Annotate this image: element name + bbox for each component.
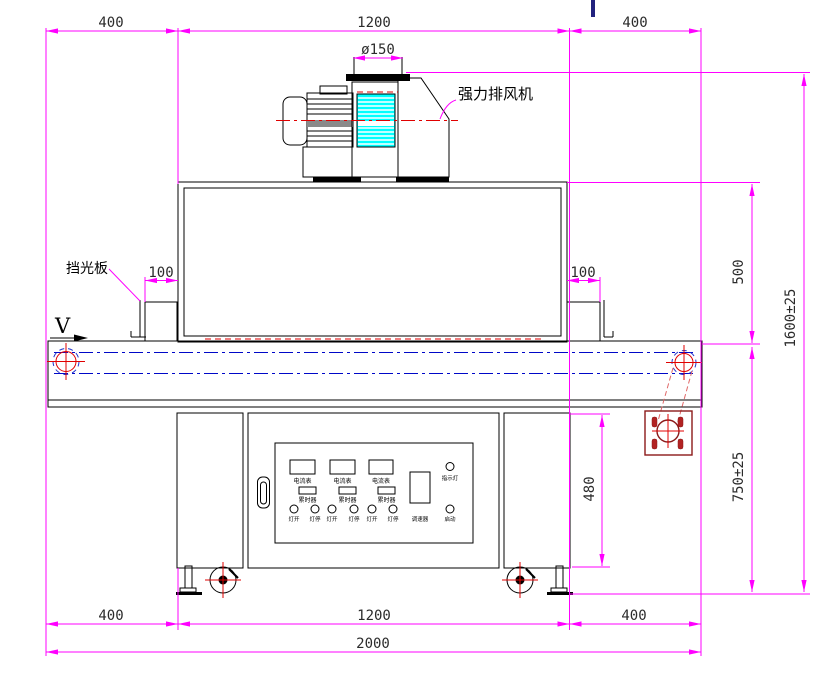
ammeter-label: 电流表 <box>293 477 311 485</box>
callouts: 挡光板 强力排风机 V <box>50 86 533 342</box>
lamp-button-label: 灯开 <box>288 515 300 523</box>
duct-stub <box>354 57 402 74</box>
shield-plate-left <box>131 300 146 337</box>
dim-label-1600: 1600±25 <box>783 288 799 347</box>
hour-counter-display <box>378 487 395 494</box>
control-panel: 电流表 电流表 电流表 累时器 累时器 累时器 灯开 灯停 灯开 灯停 灯开 灯… <box>258 443 474 543</box>
oven-body <box>178 182 567 342</box>
ammeter-label: 电流表 <box>333 477 351 485</box>
dim-label-100-right: 100 <box>570 265 595 281</box>
belt-centerlines <box>54 353 696 374</box>
bracket-slot <box>652 439 657 449</box>
dim-label-480: 480 <box>582 476 598 501</box>
door-handle-inner <box>261 482 267 504</box>
dim-label-bottom-400-right: 400 <box>621 608 646 624</box>
caster-left <box>205 562 241 598</box>
cabinet-middle <box>248 413 499 568</box>
oven-inner-wall <box>184 188 561 336</box>
roller-left <box>47 343 85 380</box>
bracket-slot <box>678 439 683 449</box>
speed-controller-label: 调速器 <box>412 515 429 523</box>
motor-band <box>307 120 353 127</box>
top-border-tick <box>591 0 595 17</box>
light-shield-leader <box>109 269 140 301</box>
hour-counter-label: 累时器 <box>338 496 356 504</box>
exhaust-scroll-housing <box>398 78 449 177</box>
exhaust-fan-label: 强力排风机 <box>458 86 533 103</box>
shield-plate-right <box>604 300 613 337</box>
lamp-off-button[interactable] <box>311 505 319 513</box>
caster-right <box>502 562 538 598</box>
lamp-button-label: 灯停 <box>348 515 360 523</box>
dim-label-duct-diameter: ø150 <box>361 42 395 58</box>
bracket-slot <box>678 417 683 427</box>
belt-direction-label: V <box>54 314 71 338</box>
drive-belt-lines <box>658 368 692 425</box>
roller-right <box>666 345 702 380</box>
dim-label-750: 750±25 <box>731 452 747 503</box>
start-button[interactable] <box>446 505 454 513</box>
fan-mount-right <box>396 177 449 182</box>
oven-outer-wall <box>178 182 567 342</box>
hour-counter-label: 累时器 <box>377 496 395 504</box>
hour-counter-display <box>339 487 356 494</box>
dim-label-100-left: 100 <box>148 265 173 281</box>
dim-label-2000: 2000 <box>356 636 390 652</box>
dim-label-500: 500 <box>731 259 747 284</box>
lamp-off-button[interactable] <box>350 505 358 513</box>
motor-pedestal <box>303 147 352 177</box>
lamp-on-button[interactable] <box>368 505 376 513</box>
bracket-slot <box>652 417 657 427</box>
light-shield-label: 挡光板 <box>66 260 108 276</box>
light-shield-left <box>131 300 177 341</box>
fan-mount-left <box>313 177 361 182</box>
lamp-button-label: 灯停 <box>387 515 399 523</box>
ammeter-display <box>330 460 355 474</box>
conveyor <box>47 341 702 407</box>
drive-motor-bracket <box>645 368 692 455</box>
indicator-light-label: 指示灯 <box>442 474 459 482</box>
start-button-label: 启动 <box>444 515 456 523</box>
exhaust-fan-assembly <box>276 57 458 182</box>
light-shield-right <box>567 300 613 341</box>
dim-label-top-400-right: 400 <box>622 15 647 31</box>
lamp-button-label: 灯开 <box>326 515 338 523</box>
speed-controller-knob[interactable] <box>410 472 430 503</box>
cabinet-right <box>504 413 570 568</box>
lamp-button-label: 灯停 <box>309 515 321 523</box>
hour-counter-label: 累时器 <box>298 496 316 504</box>
lamp-button-label: 灯开 <box>366 515 378 523</box>
shield-step-left <box>145 302 177 341</box>
fan-shaft-band <box>358 121 394 126</box>
dim-label-bottom-400-left: 400 <box>98 608 123 624</box>
hour-counter-display <box>299 487 316 494</box>
dim-label-top-1200: 1200 <box>357 15 391 31</box>
lamp-on-button[interactable] <box>290 505 298 513</box>
cabinet-left <box>177 413 243 568</box>
machine-drawing: 电流表 电流表 电流表 累时器 累时器 累时器 灯开 灯停 灯开 灯停 灯开 灯… <box>0 0 835 675</box>
leveling-foot-left <box>176 566 202 595</box>
ammeter-display <box>290 460 315 474</box>
lamp-off-button[interactable] <box>389 505 397 513</box>
belt-direction-arrow-head <box>74 335 88 342</box>
panel-face <box>275 443 473 543</box>
dimension-labels: 400 1200 400 ø150 100 100 500 1600±25 75… <box>98 15 799 652</box>
lamp-on-button[interactable] <box>328 505 336 513</box>
dim-label-bottom-1200: 1200 <box>357 608 391 624</box>
shield-step-right <box>567 302 600 341</box>
dim-label-top-400-left: 400 <box>98 15 123 31</box>
ammeter-label: 电流表 <box>372 477 390 485</box>
base-cabinets <box>177 413 570 568</box>
ammeter-display <box>369 460 393 474</box>
indicator-light <box>446 463 454 471</box>
